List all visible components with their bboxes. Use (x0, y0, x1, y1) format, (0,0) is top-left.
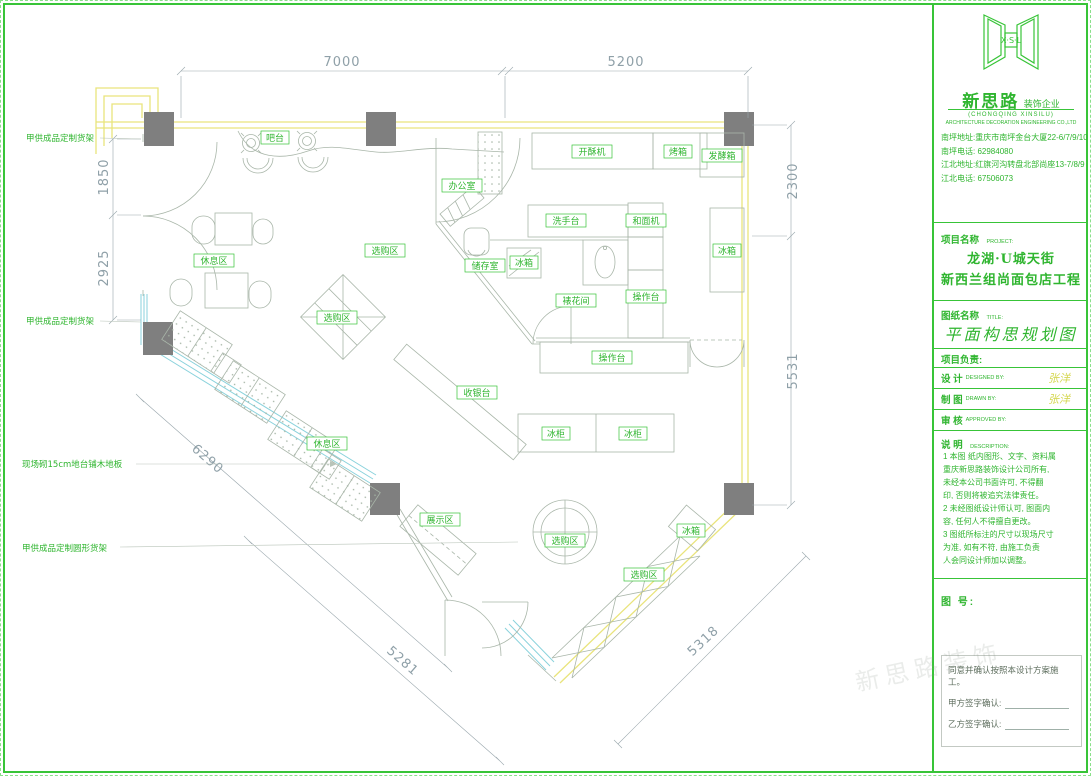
brand-suffix: 装饰企业 (1024, 99, 1060, 109)
svg-text:吧台: 吧台 (266, 132, 284, 144)
label-browse1: 选购区 (365, 244, 405, 257)
label-bar: 吧台 (261, 131, 289, 144)
sheet-number-label: 图 号: (941, 593, 975, 608)
sofa-row (162, 311, 381, 521)
chair (170, 279, 192, 306)
approved-row: 审 核 APPROVED BY: (941, 411, 1084, 429)
kitchen-diagonal-wall (436, 221, 535, 344)
svg-text:冰柜: 冰柜 (624, 428, 642, 440)
approved-label: 审 核 (941, 413, 963, 427)
bottom-door-right (482, 602, 528, 648)
svg-text:办公室: 办公室 (448, 180, 475, 192)
dim-1850: 1850 (97, 158, 112, 195)
drawn-value: 张洋 (1048, 391, 1070, 407)
bar-stool (298, 157, 328, 172)
label-piping-room: 裱花间 (556, 294, 596, 307)
note-line: 重庆新思路装饰设计公司所有, (943, 463, 1084, 476)
party-a-row: 甲方签字确认: (948, 697, 1075, 709)
note-line: 人会同设计师加以调整。 (943, 554, 1084, 567)
title-block: X·S·L 新思路 装饰企业 (CHONGQING XINSILU) ARCHI… (932, 3, 1088, 773)
label-rest1: 休息区 (194, 254, 234, 267)
annotation-shelf-top: 甲供成品定制货架 (26, 133, 95, 144)
label-fridge-corner: 冰箱 (677, 524, 705, 537)
label-worktop-h: 操作台 (592, 351, 632, 364)
office-chair (464, 228, 489, 255)
svg-text:发酵箱: 发酵箱 (708, 150, 735, 162)
note-line: 2 未经图纸设计师认可, 图面内 (943, 502, 1084, 515)
project-label: 项目名称 (941, 235, 979, 246)
basin (595, 246, 615, 278)
svg-text:和面机: 和面机 (632, 215, 659, 227)
svg-text:操作台: 操作台 (632, 291, 659, 303)
dim-5531: 5531 (786, 352, 801, 389)
dim-5281: 5281 (383, 644, 421, 680)
contact-line: 南坪地址:重庆市南坪金台大厦22-6/7/9/10 (941, 131, 1086, 145)
chair (249, 281, 271, 308)
label-fridge-cold: 冰箱 (510, 256, 538, 269)
columns (143, 112, 754, 515)
project-label-row: 项目名称 PROJECT: (941, 230, 1013, 248)
drawing-sheet: 7000 5200 1850 2925 2300 5531 6290 5281 … (0, 0, 1091, 776)
svg-text:选购区: 选购区 (630, 569, 657, 581)
cashier-counter (394, 344, 526, 460)
dining-table (205, 273, 248, 308)
label-oven: 烤箱 (664, 145, 692, 158)
label-browse2: 选购区 (317, 311, 357, 324)
label-storage: 储存室 (465, 259, 505, 272)
dim-lines (109, 67, 810, 765)
svg-text:收银台: 收银台 (463, 387, 490, 399)
label-mixer: 和面机 (626, 214, 666, 227)
note-line: 未经本公司书面许可, 不得翻 (943, 476, 1084, 489)
svg-text:冰箱: 冰箱 (515, 257, 533, 269)
project-name-line1: 龙湖·U城天街 (934, 248, 1088, 267)
dim-2925: 2925 (97, 249, 112, 286)
label-rest2: 休息区 (307, 437, 347, 450)
approved-en: APPROVED BY: (966, 417, 1007, 423)
svg-text:开酥机: 开酥机 (578, 146, 605, 158)
dim-7000: 7000 (323, 55, 360, 70)
annotation-shelf-mid: 甲供成品定制货架 (26, 316, 95, 327)
dining-table (215, 213, 252, 245)
drawn-row: 制 图 DRAWN BY: 张洋 (941, 390, 1084, 408)
apex-glazing (505, 620, 554, 670)
company-logo: X·S·L (934, 11, 1088, 78)
label-browse4: 选购区 (624, 568, 664, 581)
label-fridge-kitchen: 冰箱 (713, 244, 741, 257)
contact-line: 江北地址:红旗河沟转盘北部尚座13-7/8/9 (941, 158, 1086, 172)
dim-5200: 5200 (607, 55, 644, 70)
designed-label: 设 计 (941, 371, 963, 385)
svg-text:裱花间: 裱花间 (562, 295, 589, 307)
label-washstand: 洗手台 (546, 214, 586, 227)
party-b-label: 乙方签字确认: (948, 718, 1001, 730)
annotation-platform: 现场砌15cm地台铺木地板 (22, 459, 123, 470)
dim-2300: 2300 (786, 162, 801, 199)
kitchen-exit-doors (690, 340, 744, 367)
label-display: 展示区 (420, 513, 460, 526)
annotation-round-shelf: 甲供成品定制圆形货架 (22, 543, 108, 554)
designed-value: 张洋 (1048, 370, 1070, 386)
party-a-signature-line (1005, 700, 1069, 709)
room-labels: 吧台 办公室 储存室 选购区 休息区 选购区 休息区 展示区 选购区 选购区 收… (194, 131, 742, 581)
description-notes: 1 本图 纸内图形、文字、资料属 重庆新思路装饰设计公司所有, 未经本公司书面许… (943, 450, 1084, 567)
dim-6290: 6290 (188, 442, 226, 478)
designed-en: DESIGNED BY: (966, 375, 1005, 381)
project-name-line2: 新西兰组尚面包店工程 (934, 269, 1088, 288)
lead-row: 项目负责: (941, 351, 1084, 366)
label-proofer: 发酵箱 (702, 149, 742, 162)
svg-text:烤箱: 烤箱 (669, 146, 687, 158)
svg-text:休息区: 休息区 (313, 438, 340, 450)
party-b-row: 乙方签字确认: (948, 718, 1075, 730)
label-office: 办公室 (442, 179, 482, 192)
note-line: 1 本图 纸内图形、文字、资料属 (943, 450, 1084, 463)
svg-text:展示区: 展示区 (426, 515, 453, 526)
note-line: 为准, 如有不符, 由施工负责 (943, 541, 1084, 554)
bottom-door-left (445, 600, 501, 656)
entry-door-leaf-top (143, 142, 217, 216)
drawn-en: DRAWN BY: (966, 396, 997, 402)
contact-line: 南坪电话: 62984080 (941, 145, 1086, 159)
svg-text:冰箱: 冰箱 (682, 525, 700, 537)
worktop-vertical (628, 270, 663, 338)
company-contacts: 南坪地址:重庆市南坪金台大厦22-6/7/9/10 南坪电话: 62984080… (941, 131, 1086, 185)
svg-text:储存室: 储存室 (471, 260, 498, 272)
designed-row: 设 计 DESIGNED BY: 张洋 (941, 369, 1084, 387)
label-freezer2: 冰柜 (619, 427, 647, 440)
svg-text:选购区: 选购区 (551, 535, 578, 547)
svg-text:休息区: 休息区 (200, 255, 227, 267)
round-display-shelf (533, 500, 597, 564)
bar-basin (297, 131, 317, 151)
svg-text:操作台: 操作台 (598, 352, 625, 364)
walls-yellow (96, 88, 748, 683)
logo-letters: X·S·L (1001, 36, 1022, 45)
confirmation-text: 同意并确认按照本设计方案施工。 (948, 664, 1075, 688)
note-line: 3 图纸所标注的尺寸以现场尺寸 (943, 528, 1084, 541)
party-a-label: 甲方签字确认: (948, 697, 1001, 709)
svg-text:洗手台: 洗手台 (552, 215, 579, 227)
dim-5318: 5318 (685, 623, 722, 659)
svg-text:冰箱: 冰箱 (718, 245, 736, 257)
signature-box: 同意并确认按照本设计方案施工。 甲方签字确认: 乙方签字确认: (941, 655, 1082, 747)
bar-basin (241, 133, 261, 153)
svg-text:冰柜: 冰柜 (547, 428, 565, 440)
note-line: 印, 否则将被追究法律责任。 (943, 489, 1084, 502)
kitchen-equipment (507, 133, 744, 373)
brand-underline (948, 109, 1074, 110)
label-cashier: 收银台 (457, 386, 497, 399)
label-freezer1: 冰柜 (542, 427, 570, 440)
brand-en2: ARCHITECTURE DECORATION ENGINEERING CO.,… (934, 120, 1088, 126)
party-b-signature-line (1005, 721, 1069, 730)
contact-line: 江北电话: 67506073 (941, 172, 1086, 186)
bar-stool (243, 158, 273, 173)
chair (192, 216, 215, 244)
svg-text:选购区: 选购区 (323, 312, 350, 324)
brand-en1: (CHONGQING XINSILU) (934, 112, 1088, 118)
drawn-label: 制 图 (941, 392, 963, 406)
chair (253, 219, 273, 244)
note-line: 容, 任何人不得擅自更改。 (943, 515, 1084, 528)
lead-label: 项目负责: (941, 352, 982, 366)
svg-text:选购区: 选购区 (371, 245, 398, 257)
project-label-en: PROJECT: (986, 239, 1013, 245)
label-worktop-v: 操作台 (626, 290, 666, 303)
sheet-title: 平面构思规划图 (934, 321, 1088, 345)
floor-plan: 7000 5200 1850 2925 2300 5531 6290 5281 … (0, 0, 932, 776)
label-sheeter: 开酥机 (572, 145, 612, 158)
label-browse3: 选购区 (545, 534, 585, 547)
shop-furniture (162, 131, 716, 575)
